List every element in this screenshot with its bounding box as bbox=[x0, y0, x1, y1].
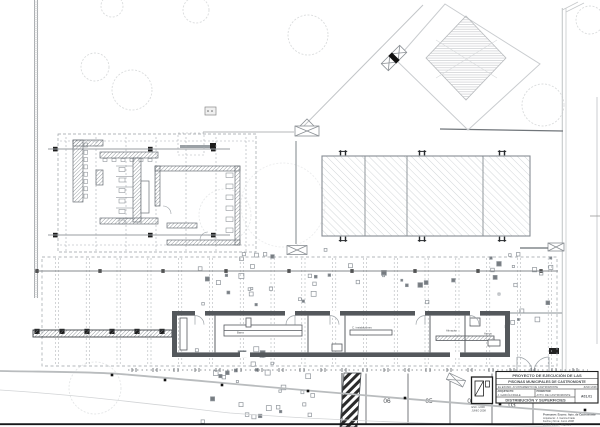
room-label: C. instalaciones bbox=[352, 326, 372, 330]
block-date: JUNIO 2008 bbox=[583, 386, 597, 389]
diamond-plaza bbox=[396, 4, 540, 130]
client-name: EL EXCMO. AYUNTAMIENTO DE CASTROMONTE bbox=[498, 385, 558, 389]
sheet-code: A01.01 bbox=[581, 394, 592, 398]
room-label: Almacén bbox=[446, 328, 457, 332]
date-note: JUNIO 2008 bbox=[472, 408, 487, 412]
main-pool bbox=[322, 156, 530, 236]
room-label: Aseos bbox=[484, 331, 492, 335]
services-building: Barra C. instalaciones Almacén Aseos bbox=[172, 311, 562, 372]
project-title-line2: PISCINAS MUNICIPALES DE CASTROMONTE bbox=[508, 380, 586, 384]
site-plan-drawing: Barra C. instalaciones Almacén Aseos 06 … bbox=[0, 0, 600, 427]
promoter-label: PROMOTOR: bbox=[537, 390, 552, 393]
promoter-value: AYTO. DE CASTROMONTE bbox=[537, 393, 571, 397]
bench-mark-symbol bbox=[205, 107, 216, 115]
title-block: PROYECTO DE EJECUCIÓN DE LAS PISCINAS MU… bbox=[472, 372, 599, 427]
project-title-line1: PROYECTO DE EJECUCIÓN DE LAS bbox=[512, 373, 582, 378]
scale-note: ESC. 1/200 bbox=[472, 405, 486, 409]
footnote-line: Escala 1/200 · Hoja 1/1 bbox=[543, 422, 571, 426]
architect-label: ARQUITECTO: bbox=[498, 390, 515, 393]
architect-value: J. GARCÍA FRAILE bbox=[498, 393, 521, 397]
stall-number: 06 bbox=[383, 398, 391, 405]
sheet-title: DISTRIBUCIÓN Y SUPERFICIES bbox=[505, 397, 566, 402]
drawing-sheet: Barra C. instalaciones Almacén Aseos 06 … bbox=[0, 0, 600, 427]
room-label: Barra bbox=[237, 330, 244, 334]
